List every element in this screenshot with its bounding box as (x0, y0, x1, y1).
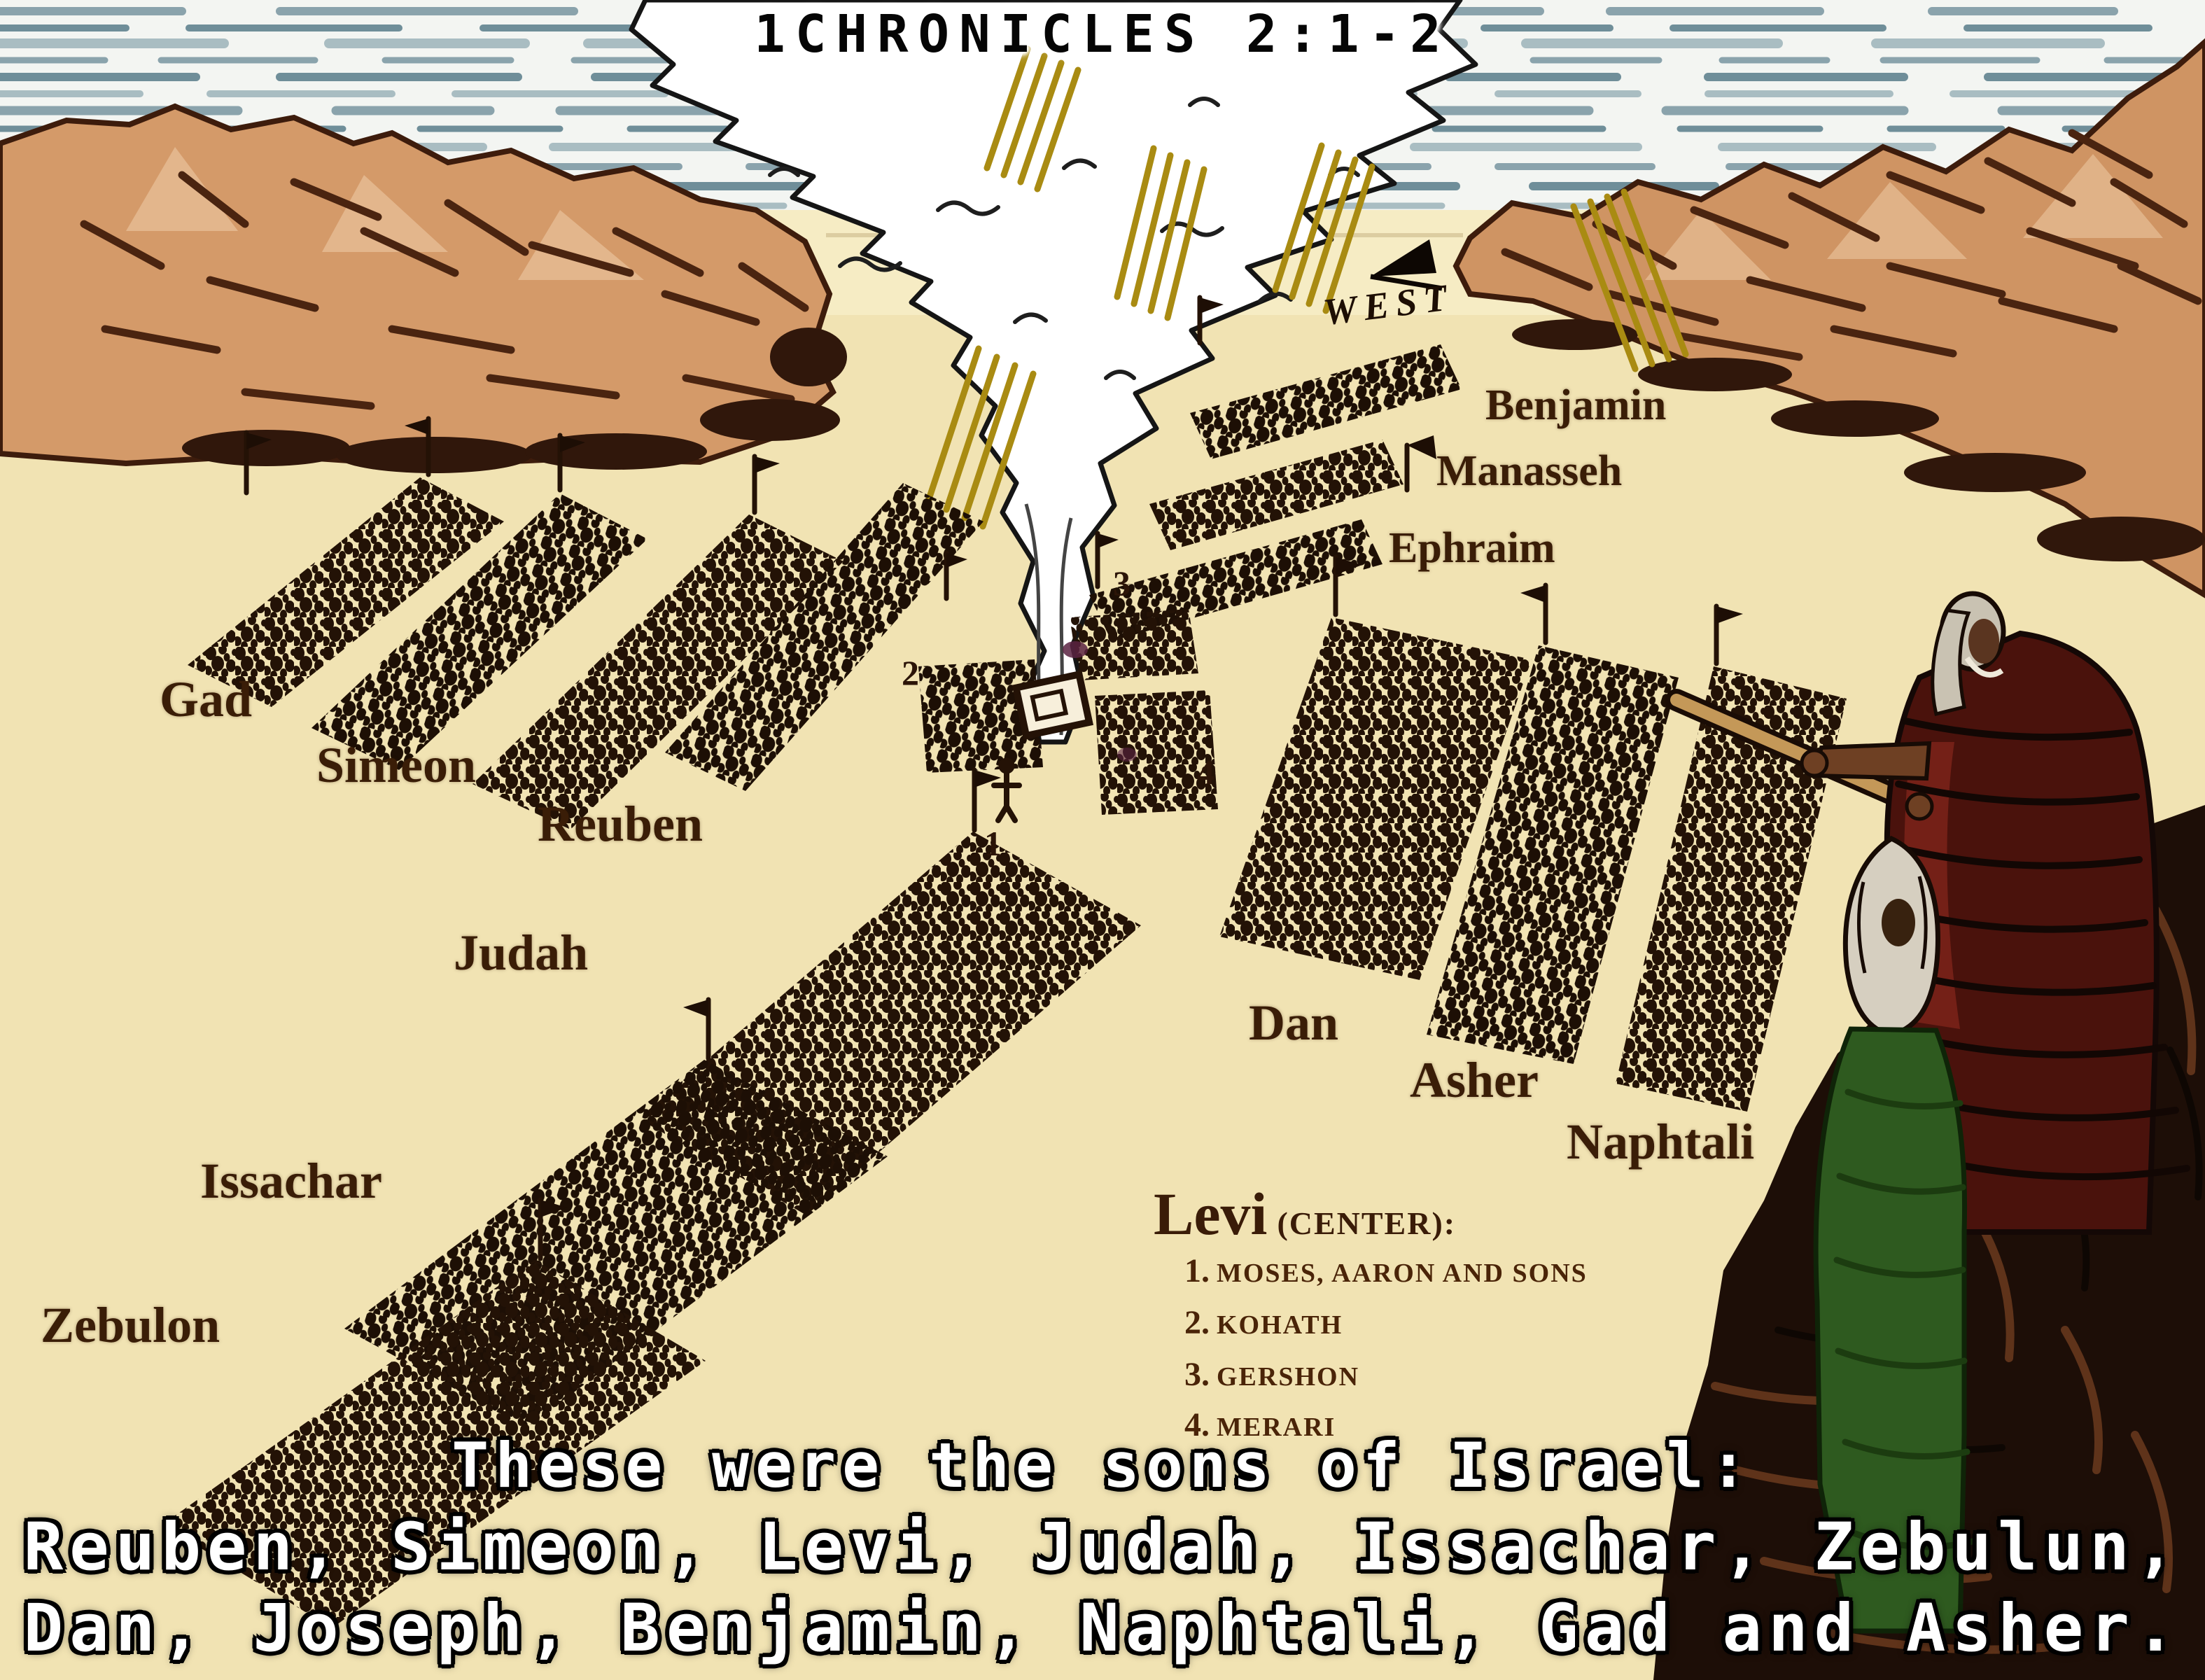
camp-label-ephraim: Ephraim (1389, 524, 1555, 573)
levi-list-item-1: 1.MOSES, AARON AND SONS (1184, 1252, 1588, 1290)
camp-label-simeon: Simeon (316, 736, 476, 794)
camp-marker-2: 2 (902, 652, 919, 693)
camp-label-gad: Gad (160, 671, 252, 729)
tabernacle (1016, 674, 1090, 736)
illustration-page: { "title": "1CHRONICLES 2:1-2", "directi… (0, 0, 2205, 1680)
camp-marker-1: 1 (984, 823, 1002, 864)
camp-label-issachar: Issachar (200, 1152, 382, 1210)
levi-item-number: 1. (1184, 1252, 1210, 1289)
levi-center-note: (CENTER): (1277, 1205, 1456, 1241)
levite-cluster-gershon (1070, 609, 1198, 680)
camp-label-reuben: Reuben (538, 795, 703, 853)
levi-heading: Levi(CENTER): (1154, 1179, 1456, 1249)
levi-item-number: 2. (1184, 1304, 1210, 1341)
levi-item-text: KOHATH (1217, 1310, 1343, 1340)
levi-name: Levi (1154, 1180, 1267, 1247)
camp-label-naphtali: Naphtali (1567, 1113, 1754, 1171)
camp-label-zebulon: Zebulon (41, 1296, 220, 1354)
levi-list-item-2: 2.KOHATH (1184, 1303, 1343, 1342)
levi-item-text: GERSHON (1217, 1362, 1359, 1392)
levi-item-number: 3. (1184, 1356, 1210, 1393)
camp-label-judah: Judah (454, 924, 588, 982)
camp-label-benjamin: Benjamin (1485, 381, 1666, 430)
camp-illustration (0, 0, 2205, 1680)
camp-marker-3: 3 (1113, 563, 1130, 603)
camp-label-manasseh: Manasseh (1436, 447, 1622, 496)
camp-label-asher: Asher (1410, 1051, 1539, 1109)
purple-accent-2 (1117, 748, 1137, 762)
caption-line-3: Dan, Joseph, Benjamin, Naphtali, Gad and… (0, 1590, 2205, 1667)
caption-line-1: These were the sons of Israel: (0, 1429, 2205, 1501)
levi-item-text: MOSES, AARON AND SONS (1217, 1259, 1588, 1288)
purple-accent-1 (1063, 641, 1088, 658)
camp-marker-4: 4 (1197, 752, 1214, 792)
page-title: 1CHRONICLES 2:1-2 (754, 4, 1450, 64)
levi-list-item-3: 3.GERSHON (1184, 1355, 1359, 1394)
camp-label-dan: Dan (1249, 994, 1338, 1052)
caption-line-2: Reuben, Simeon, Levi, Judah, Issachar, Z… (0, 1509, 2205, 1585)
